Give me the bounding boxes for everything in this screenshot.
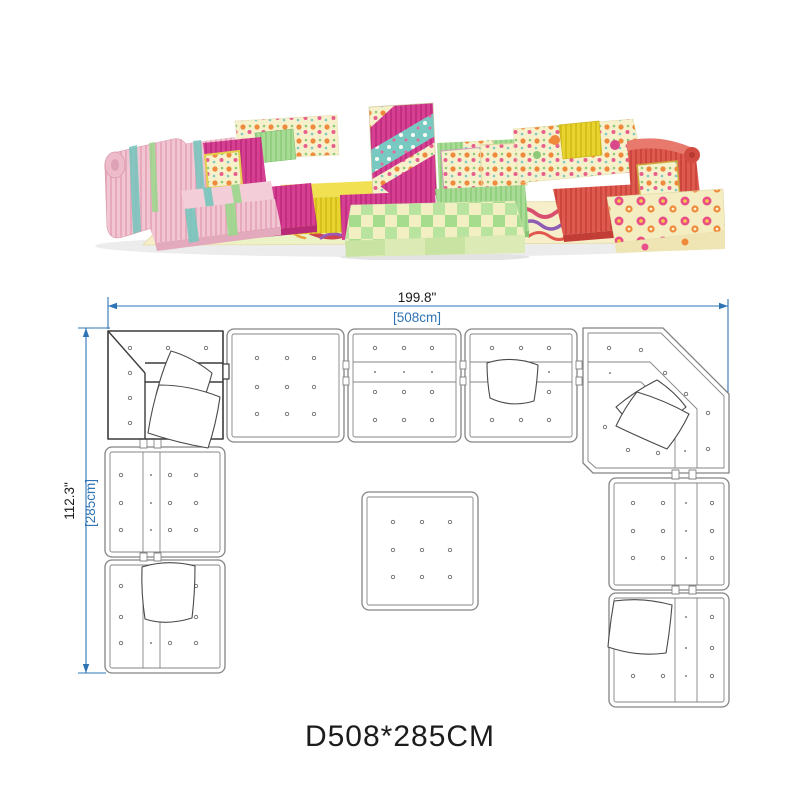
width-label-cm: [508cm] [393,310,441,325]
product-photo [85,95,725,260]
floral-back-right [513,119,645,183]
floral-ottoman [607,189,725,253]
height-label-cm: [285cm] [83,479,98,527]
pillow-left-column [142,563,195,623]
pillow-right-column [608,600,672,654]
height-label-inches: 112.3" [62,482,77,520]
module-left-2 [105,447,225,557]
module-center-ottoman [362,492,478,610]
floral-pillow-left [205,151,242,188]
dimension-plan: 199.8" [508cm] 112.3" [285cm] [60,285,740,715]
yellow-pillow [559,121,602,159]
checkered-ottoman [340,201,530,260]
module-right-2 [609,478,729,590]
width-label-inches: 199.8" [398,290,437,305]
pillow-top-4 [487,359,538,403]
product-listing-image: 199.8" [508cm] 112.3" [285cm] [0,0,800,800]
size-caption: D508*285CM [0,720,800,754]
